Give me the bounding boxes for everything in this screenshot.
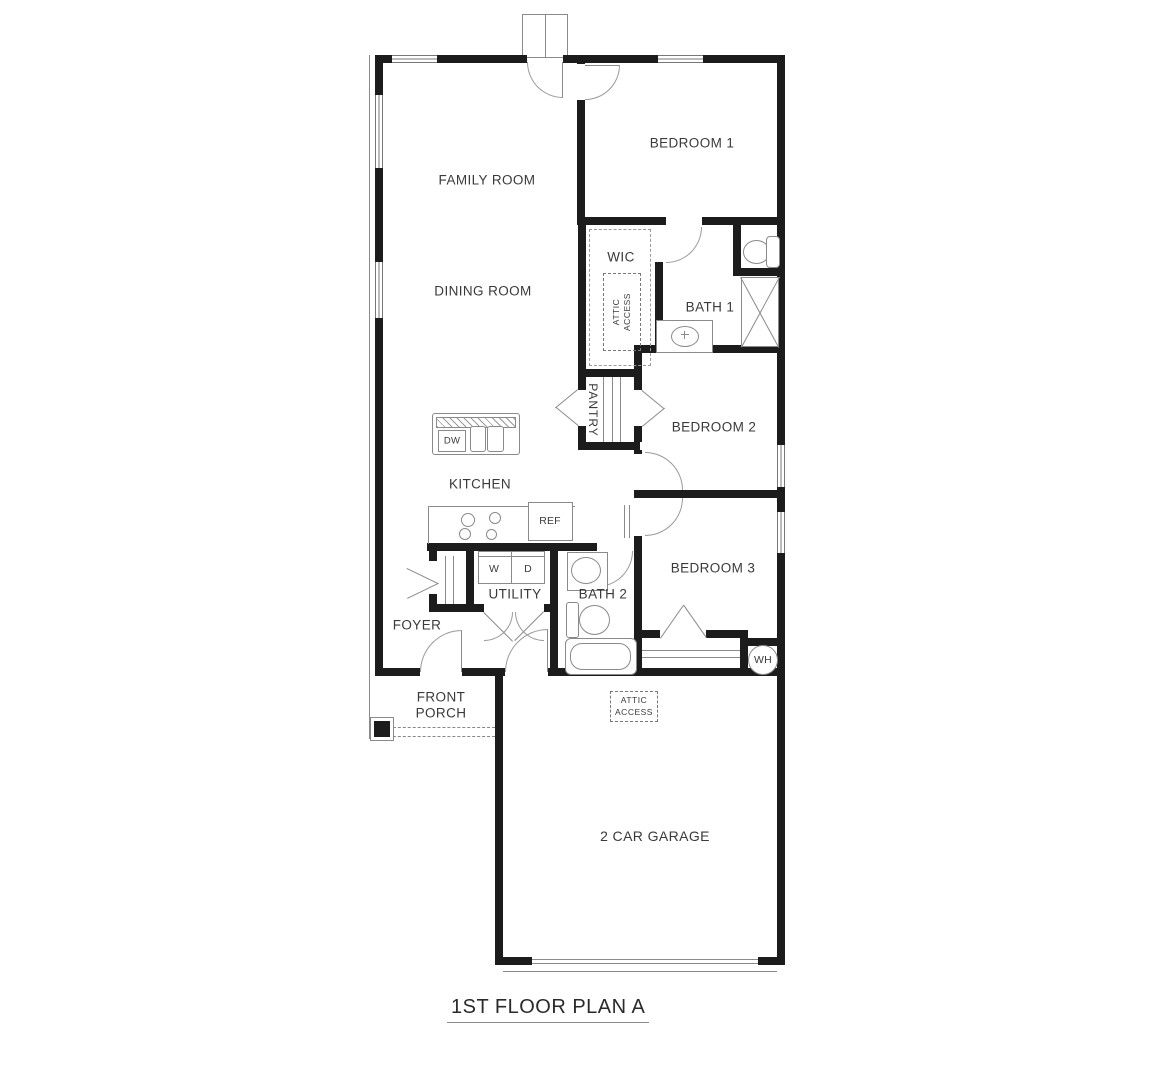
room-label-bath1: BATH 1 bbox=[686, 300, 735, 315]
bath1-basin bbox=[671, 326, 699, 347]
refrigerator-label: REF bbox=[539, 515, 561, 527]
faucet-mark bbox=[684, 331, 685, 339]
cooktop-burner bbox=[459, 528, 471, 540]
room-label-wic: WIC bbox=[607, 250, 634, 265]
door-swing bbox=[645, 498, 683, 536]
wall-segment bbox=[427, 543, 597, 551]
wall-segment bbox=[577, 100, 585, 222]
wall-segment bbox=[733, 268, 785, 276]
cooktop-burner bbox=[486, 529, 497, 540]
wall-segment bbox=[429, 604, 484, 612]
closet-shelf-line bbox=[642, 657, 740, 658]
bifold-door-leaf bbox=[555, 389, 578, 408]
bath2-basin bbox=[571, 557, 601, 584]
wall-segment bbox=[466, 551, 474, 612]
attic-access-garage: ATTIC ACCESS bbox=[610, 691, 658, 722]
room-label-pantry: PANTRY bbox=[586, 383, 600, 437]
wall-segment bbox=[495, 676, 503, 965]
wall-segment bbox=[634, 426, 642, 442]
wall-segment bbox=[777, 685, 785, 965]
bifold-door-leaf bbox=[660, 605, 684, 638]
room-label-bedroom1: BEDROOM 1 bbox=[650, 136, 735, 151]
toilet-tank bbox=[766, 236, 780, 268]
cooktop-burner bbox=[461, 513, 475, 527]
kitchen-sink bbox=[470, 426, 486, 452]
room-label-garage: 2 CAR GARAGE bbox=[600, 828, 710, 844]
floor-plan: ATTIC ACCESS ATTIC ACCESS WH FAMILY ROOM… bbox=[0, 0, 1168, 1085]
roof-edge-line bbox=[369, 55, 370, 739]
porch-edge-dashed bbox=[378, 727, 495, 728]
washer-dryer-line bbox=[478, 556, 545, 557]
wall-segment bbox=[495, 957, 532, 965]
wall-segment bbox=[578, 225, 586, 377]
wall-segment bbox=[577, 217, 666, 225]
faucet-mark bbox=[681, 334, 689, 335]
room-label-utility: UTILITY bbox=[488, 587, 541, 602]
wall-face-line bbox=[624, 505, 625, 538]
bathtub-inner bbox=[570, 643, 631, 670]
wall-segment bbox=[578, 369, 640, 377]
wall-segment bbox=[375, 318, 383, 675]
pantry-shelf-line bbox=[620, 377, 621, 442]
wall-segment bbox=[634, 450, 642, 454]
rear-stoop-line bbox=[545, 15, 546, 57]
wall-segment bbox=[758, 957, 785, 965]
room-label-family: FAMILY ROOM bbox=[439, 173, 536, 188]
window bbox=[777, 512, 785, 553]
room-label-dining: DINING ROOM bbox=[434, 284, 531, 299]
window bbox=[777, 445, 785, 487]
wall-segment bbox=[777, 553, 785, 685]
wall-segment bbox=[578, 442, 640, 450]
bifold-door-leaf bbox=[641, 390, 664, 409]
counter-edge bbox=[428, 506, 429, 544]
attic-access-label: ACCESS bbox=[622, 293, 633, 331]
bifold-door-leaf bbox=[683, 605, 707, 638]
wall-segment bbox=[702, 217, 785, 225]
wall-segment bbox=[642, 630, 660, 638]
wall-segment bbox=[375, 668, 420, 676]
plan-title: 1ST FLOOR PLAN A bbox=[447, 996, 649, 1023]
door-swing bbox=[585, 65, 620, 100]
dryer-label: D bbox=[524, 563, 532, 575]
window bbox=[375, 262, 383, 318]
wall-segment bbox=[429, 551, 437, 561]
window bbox=[392, 55, 437, 63]
garage-door-line bbox=[532, 959, 758, 960]
closet-shelf-line bbox=[642, 650, 740, 651]
pantry-shelf-line bbox=[612, 377, 613, 442]
wall-segment bbox=[578, 377, 586, 390]
closet-shelf-line bbox=[453, 556, 454, 604]
room-label-porch2: PORCH bbox=[416, 706, 467, 721]
window bbox=[375, 95, 383, 168]
porch-edge-dashed bbox=[378, 736, 495, 737]
cooktop-burner bbox=[489, 512, 501, 524]
wall-segment bbox=[703, 55, 785, 63]
room-label-bedroom3: BEDROOM 3 bbox=[671, 561, 756, 576]
wall-segment bbox=[437, 55, 527, 63]
room-label-bedroom2: BEDROOM 2 bbox=[672, 420, 757, 435]
room-label-kitchen: KITCHEN bbox=[449, 477, 511, 492]
dishwasher-label: DW bbox=[444, 436, 460, 447]
wall-segment bbox=[429, 594, 437, 604]
kitchen-sink bbox=[487, 426, 504, 452]
wall-segment bbox=[578, 426, 586, 442]
attic-access-label: ACCESS bbox=[615, 707, 653, 718]
wall-segment bbox=[577, 55, 585, 64]
attic-access-label: ATTIC bbox=[621, 695, 647, 706]
attic-access-label: ATTIC bbox=[611, 293, 622, 331]
door-swing bbox=[666, 227, 702, 263]
room-label-foyer: FOYER bbox=[393, 618, 442, 633]
closet-shelf-line bbox=[445, 556, 446, 604]
bifold-door-leaf bbox=[642, 408, 665, 427]
wall-segment bbox=[375, 55, 383, 95]
garage-apron-line bbox=[503, 971, 777, 972]
wall-segment bbox=[550, 543, 558, 676]
bifold-door-leaf bbox=[407, 568, 439, 584]
water-heater-label: WH bbox=[754, 654, 772, 666]
wall-segment bbox=[634, 377, 642, 390]
washer-label: W bbox=[489, 563, 499, 575]
door-swing bbox=[645, 452, 683, 490]
toilet-bowl bbox=[579, 605, 610, 635]
pantry-divider bbox=[603, 377, 604, 442]
bifold-door-leaf bbox=[556, 407, 579, 426]
garage-door-line bbox=[532, 963, 758, 964]
wall-segment bbox=[375, 168, 383, 262]
room-label-bath2: BATH 2 bbox=[579, 587, 628, 602]
door-swing bbox=[527, 62, 563, 98]
porch-column bbox=[374, 721, 390, 737]
attic-access-wic: ATTIC ACCESS bbox=[603, 273, 641, 351]
wall-face-line bbox=[629, 505, 630, 538]
room-label-porch1: FRONT bbox=[417, 690, 466, 705]
door-swing bbox=[420, 630, 462, 672]
wall-segment bbox=[462, 668, 505, 676]
wall-segment bbox=[634, 490, 785, 498]
wall-segment bbox=[740, 630, 748, 676]
window bbox=[658, 55, 703, 63]
toilet-tank bbox=[566, 602, 579, 638]
